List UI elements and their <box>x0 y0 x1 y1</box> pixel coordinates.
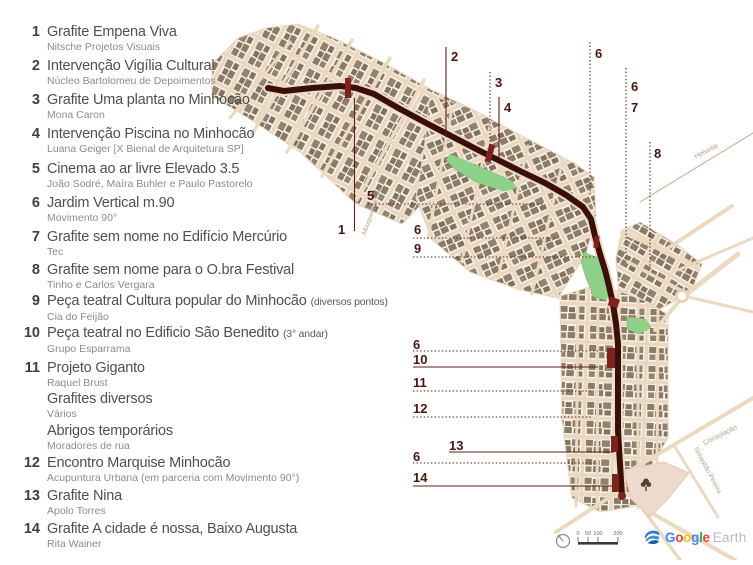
logo-letter: G <box>665 530 675 545</box>
map-callout-10: 10 <box>413 352 427 367</box>
logo-letter: o <box>683 530 691 545</box>
scale-bar: 050100200 <box>557 531 623 548</box>
roundabout <box>677 291 688 302</box>
map-callout-6: 6 <box>414 222 421 237</box>
logo-letter: g <box>691 530 699 545</box>
map-callout-6: 6 <box>631 79 638 94</box>
map-callout-7: 7 <box>631 100 638 115</box>
google-earth-logo: Google Earth <box>642 527 747 547</box>
map-callout-9: 9 <box>414 241 421 256</box>
map-canvas: 23466781569610111213614 Albuquerque Lins… <box>0 0 753 560</box>
logo-word-google: Google <box>665 530 710 545</box>
map-callout-13: 13 <box>449 438 463 453</box>
street-label-consolacao: Consolação <box>702 424 738 447</box>
map-callout-4: 4 <box>504 100 512 115</box>
map-callout-2: 2 <box>451 49 458 64</box>
scale-tick-label: 200 <box>613 531 622 537</box>
google-earth-icon <box>642 527 662 547</box>
scale-tick-label: 50 <box>585 531 591 537</box>
map-callout-6: 6 <box>595 46 602 61</box>
map-callout-6: 6 <box>413 337 420 352</box>
map-callout-6: 6 <box>413 449 420 464</box>
map-callout-11: 11 <box>413 375 427 390</box>
logo-letter: e <box>703 530 710 545</box>
map-callout-8: 8 <box>654 146 661 161</box>
street-label-helvetia: Helvetia <box>693 143 719 161</box>
street-label-sebastiao: Sebastião Pereira <box>692 446 723 495</box>
logo-word-earth: Earth <box>713 530 747 545</box>
google-earth-map: 23466781569610111213614 Albuquerque Lins… <box>0 0 753 560</box>
logo-letter: o <box>675 530 683 545</box>
map-callout-12: 12 <box>413 401 427 416</box>
scale-tick-label: 100 <box>593 531 602 537</box>
map-callout-1: 1 <box>338 222 345 237</box>
map-callout-14: 14 <box>413 470 428 485</box>
scale-tick-label: 0 <box>576 531 579 537</box>
map-callout-3: 3 <box>495 75 502 90</box>
plaza <box>624 462 689 517</box>
